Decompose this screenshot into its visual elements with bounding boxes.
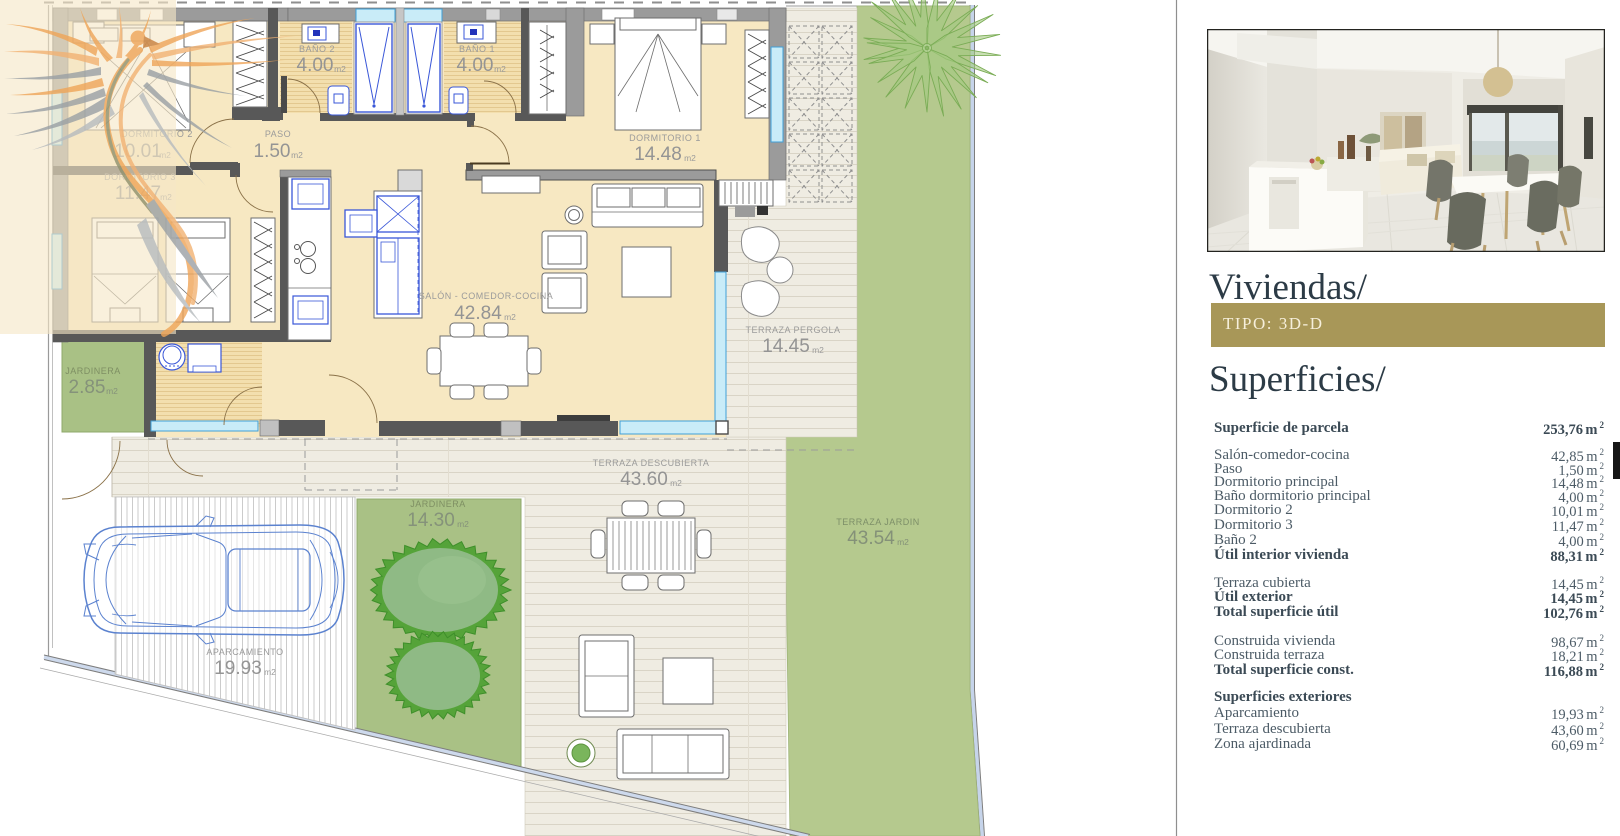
svg-text:m2: m2 xyxy=(504,312,516,322)
svg-text:BAÑO 2: BAÑO 2 xyxy=(299,44,335,54)
svg-text:m2: m2 xyxy=(334,64,346,74)
svg-text:JARDINERA: JARDINERA xyxy=(410,499,466,509)
svg-text:APARCAMIENTO: APARCAMIENTO xyxy=(206,647,283,657)
svg-text:43.60: 43.60 xyxy=(620,469,668,490)
svg-text:42.84: 42.84 xyxy=(454,303,502,324)
svg-text:BAÑO 1: BAÑO 1 xyxy=(459,44,495,54)
svg-text:m2: m2 xyxy=(670,478,682,488)
svg-text:TERRAZA JARDIN: TERRAZA JARDIN xyxy=(836,517,920,527)
svg-text:m2: m2 xyxy=(494,64,506,74)
svg-text:PASO: PASO xyxy=(265,129,291,139)
svg-text:m2: m2 xyxy=(457,519,469,529)
svg-text:JARDINERA: JARDINERA xyxy=(65,366,121,376)
svg-text:TERRAZA DESCUBIERTA: TERRAZA DESCUBIERTA xyxy=(593,458,710,468)
svg-text:1.50: 1.50 xyxy=(254,141,291,162)
svg-text:14.30: 14.30 xyxy=(407,510,455,531)
svg-text:m2: m2 xyxy=(897,537,909,547)
svg-text:SALÓN - COMEDOR-COCINA: SALÓN - COMEDOR-COCINA xyxy=(419,291,554,301)
svg-text:m2: m2 xyxy=(106,386,118,396)
svg-text:m2: m2 xyxy=(684,153,696,163)
svg-text:19.93: 19.93 xyxy=(214,658,262,679)
svg-text:DORMITORIO 1: DORMITORIO 1 xyxy=(629,133,701,143)
svg-text:14.48: 14.48 xyxy=(634,144,682,165)
svg-text:TERRAZA PERGOLA: TERRAZA PERGOLA xyxy=(745,325,840,335)
svg-text:m2: m2 xyxy=(812,345,824,355)
svg-text:43.54: 43.54 xyxy=(847,528,895,549)
svg-text:m2: m2 xyxy=(291,150,303,160)
svg-text:2.85: 2.85 xyxy=(69,377,106,398)
svg-text:4.00: 4.00 xyxy=(457,55,494,76)
svg-text:m2: m2 xyxy=(264,667,276,677)
svg-text:4.00: 4.00 xyxy=(297,55,334,76)
svg-text:14.45: 14.45 xyxy=(762,336,810,357)
